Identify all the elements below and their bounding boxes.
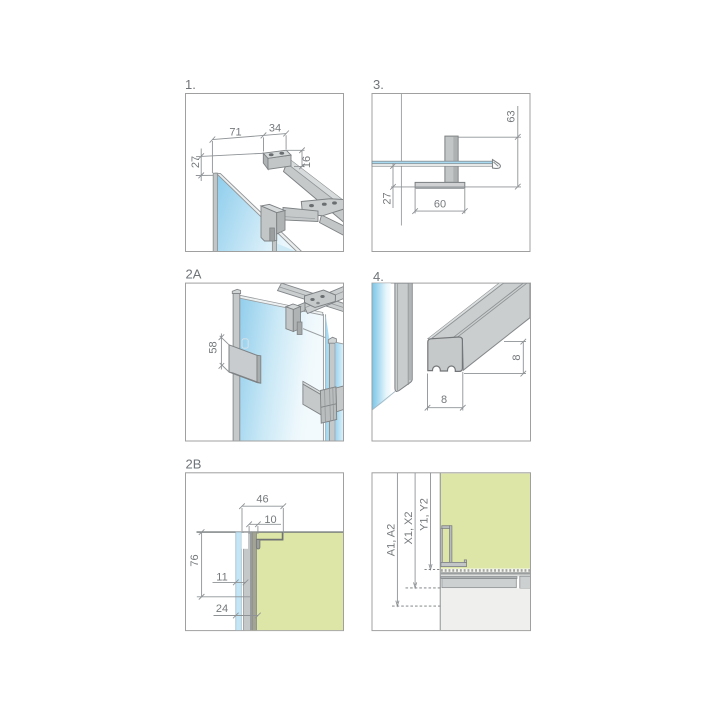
svg-text:8: 8 — [511, 354, 523, 360]
svg-text:8: 8 — [441, 394, 447, 406]
svg-text:Y1, Y2: Y1, Y2 — [419, 498, 431, 531]
svg-text:60: 60 — [434, 199, 446, 211]
svg-text:27: 27 — [190, 156, 202, 168]
svg-text:46: 46 — [256, 494, 268, 506]
svg-text:11: 11 — [216, 572, 227, 584]
svg-text:2B: 2B — [186, 457, 202, 472]
svg-text:A1, A2: A1, A2 — [386, 524, 398, 556]
svg-text:63: 63 — [506, 110, 518, 122]
svg-text:76: 76 — [189, 554, 201, 566]
svg-text:58: 58 — [208, 341, 220, 353]
svg-text:3.: 3. — [373, 77, 384, 92]
svg-text:2A: 2A — [186, 267, 202, 282]
svg-text:16: 16 — [301, 156, 313, 168]
svg-text:24: 24 — [216, 603, 228, 615]
svg-text:71: 71 — [229, 127, 241, 139]
svg-text:27: 27 — [382, 192, 394, 204]
svg-text:X1, X2: X1, X2 — [403, 511, 415, 544]
svg-text:1.: 1. — [185, 77, 196, 92]
svg-text:34: 34 — [269, 123, 281, 135]
svg-text:10: 10 — [264, 514, 276, 526]
svg-text:4.: 4. — [373, 269, 384, 284]
